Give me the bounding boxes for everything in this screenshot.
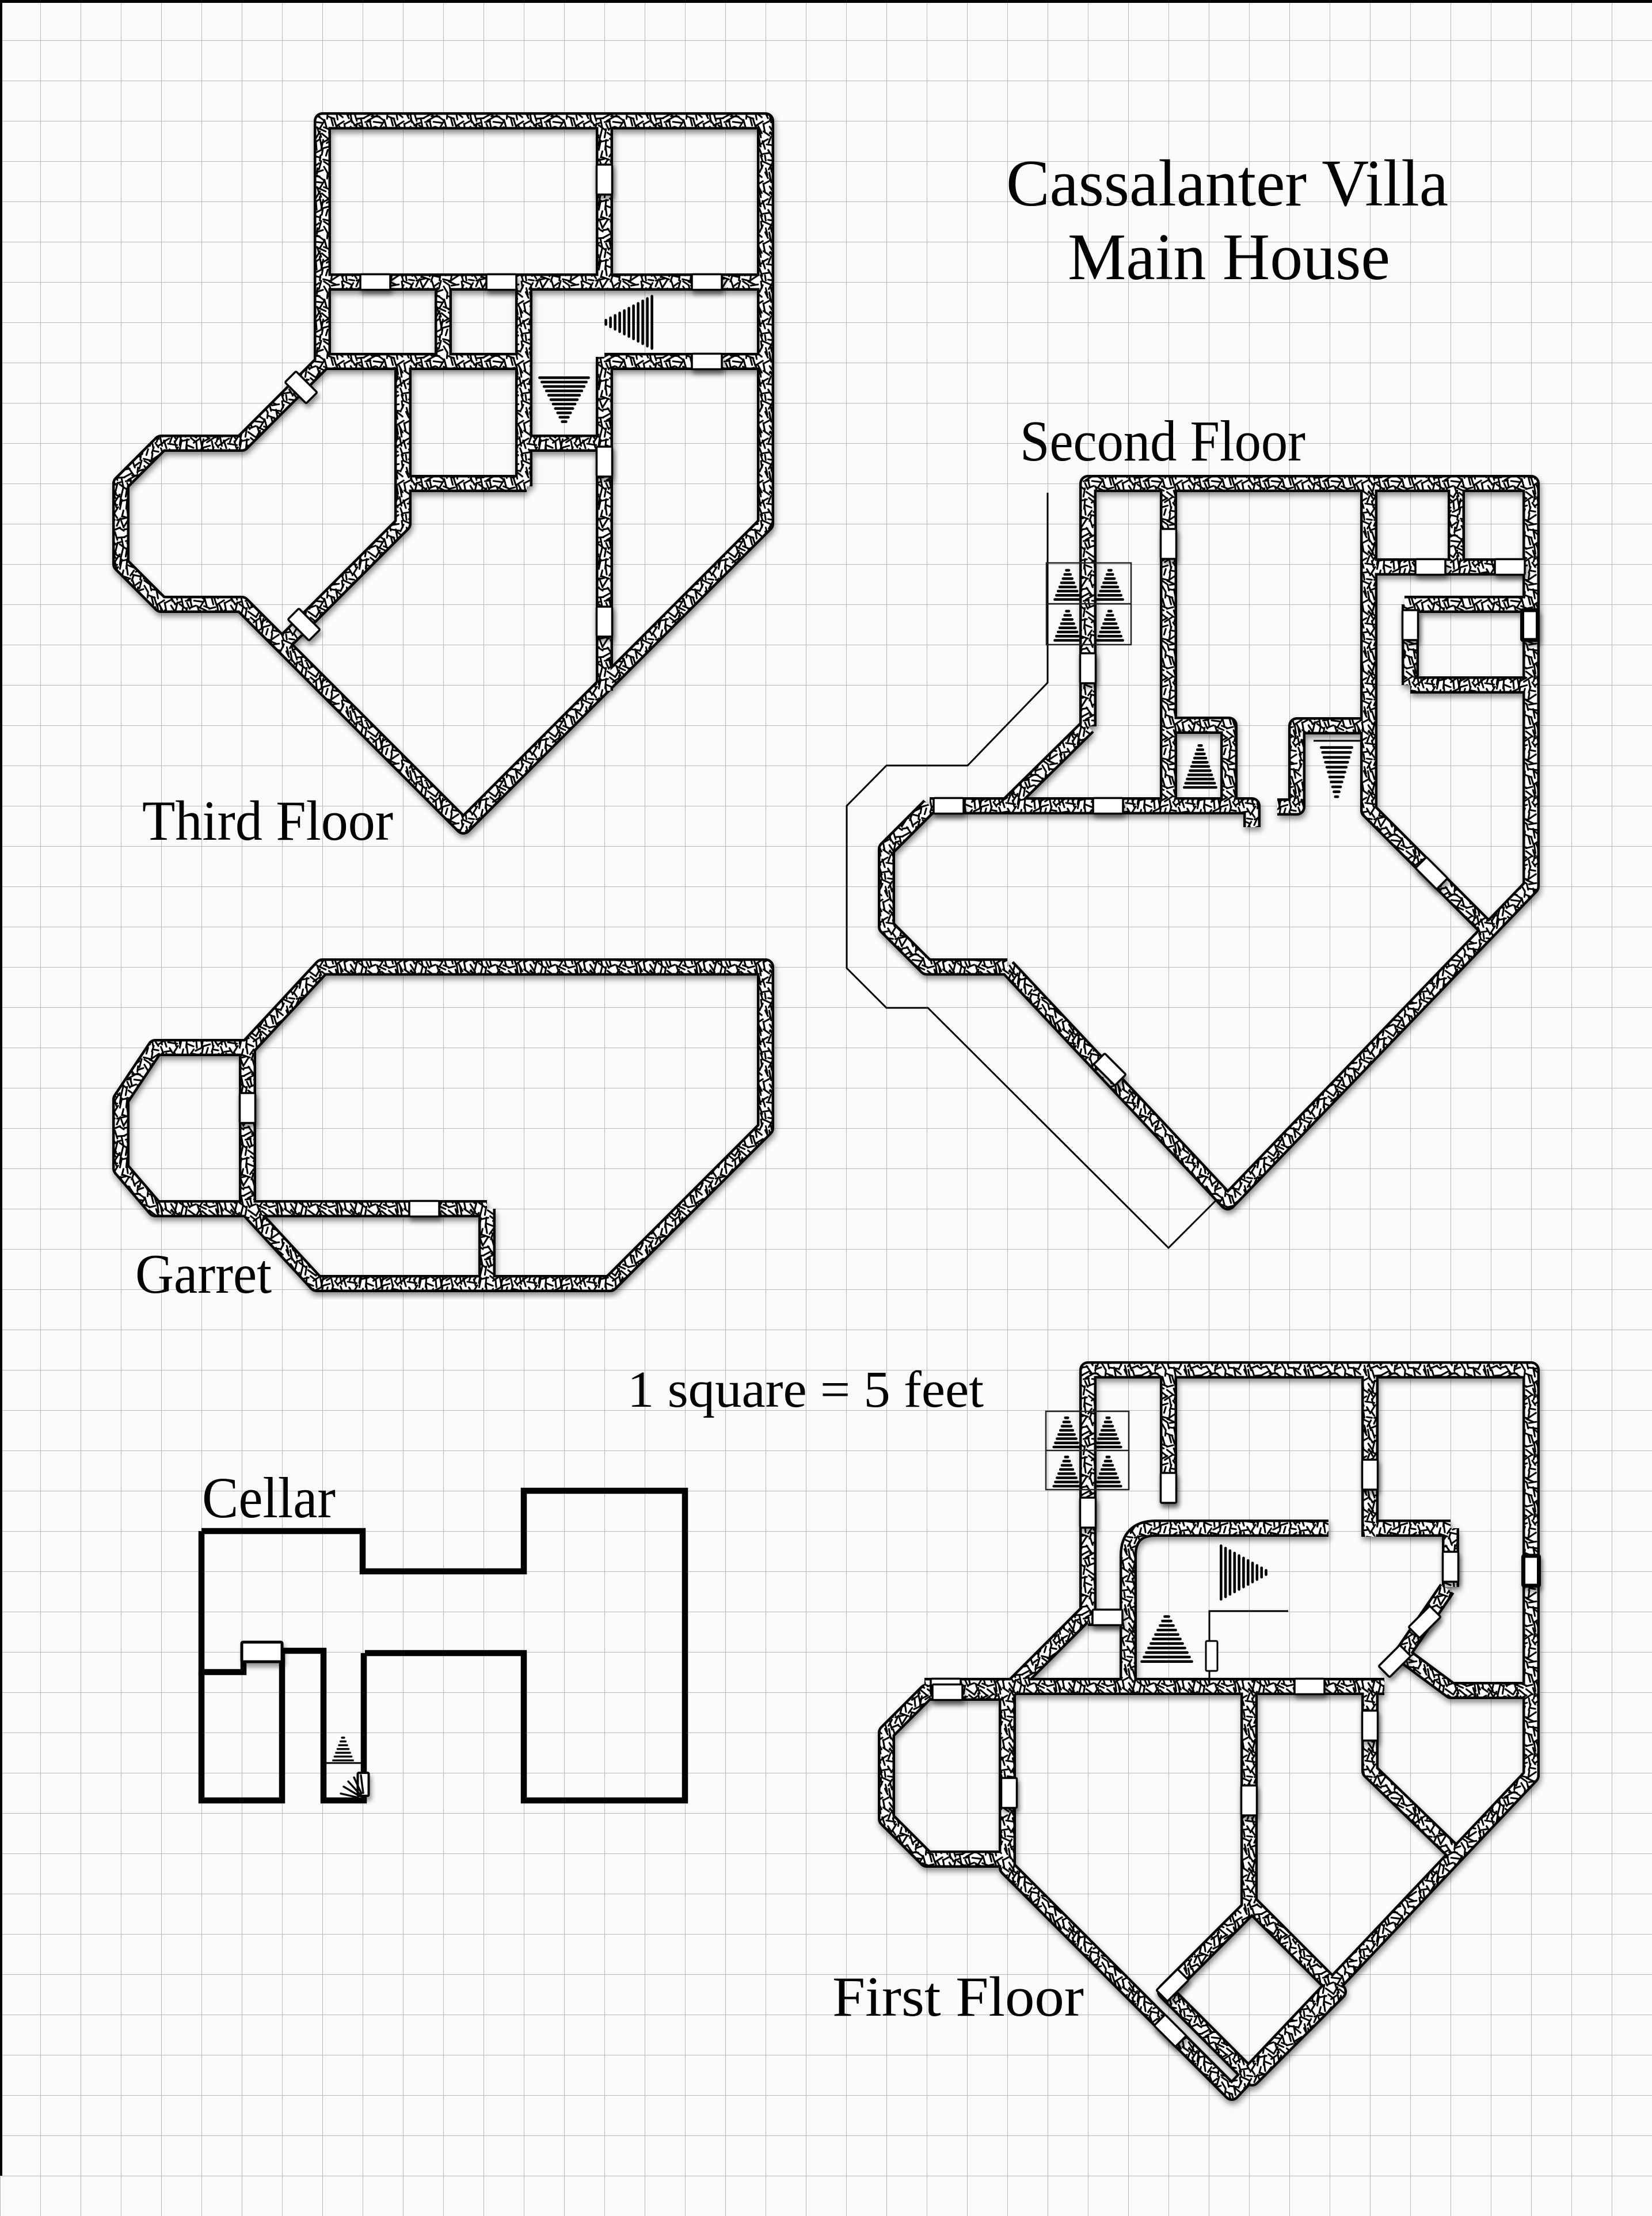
svg-text:1 square = 5 feet: 1 square = 5 feet bbox=[627, 1361, 984, 1418]
svg-text:Main House: Main House bbox=[1068, 220, 1390, 294]
svg-text:Third Floor: Third Floor bbox=[142, 790, 393, 852]
svg-text:First Floor: First Floor bbox=[832, 1966, 1084, 2028]
svg-text:Second Floor: Second Floor bbox=[1020, 409, 1305, 473]
svg-text:Cassalanter Villa: Cassalanter Villa bbox=[1006, 147, 1448, 220]
svg-text:Garret: Garret bbox=[135, 1243, 272, 1305]
svg-text:Cellar: Cellar bbox=[202, 1465, 336, 1530]
